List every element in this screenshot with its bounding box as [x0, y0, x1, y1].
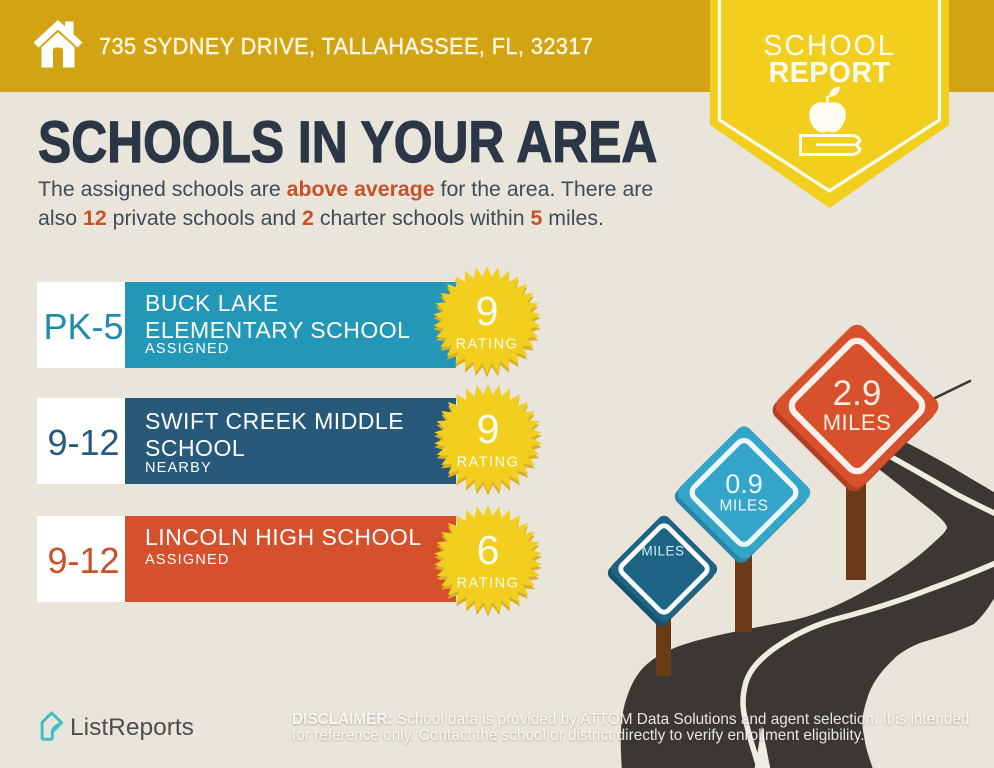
svg-text:9: 9	[477, 406, 500, 452]
svg-text:RATING: RATING	[457, 455, 520, 471]
svg-text:0.9: 0.9	[725, 469, 763, 499]
svg-text:MILES: MILES	[719, 498, 768, 515]
svg-text:9: 9	[476, 288, 499, 334]
svg-text:RATING: RATING	[456, 337, 519, 353]
svg-text:MILES: MILES	[823, 410, 892, 435]
svg-text:RATING: RATING	[457, 576, 520, 592]
svg-text:2.9: 2.9	[833, 374, 882, 413]
svg-text:MILES: MILES	[641, 544, 684, 559]
svg-text:REPORT: REPORT	[769, 57, 891, 89]
svg-text:6: 6	[477, 527, 500, 573]
